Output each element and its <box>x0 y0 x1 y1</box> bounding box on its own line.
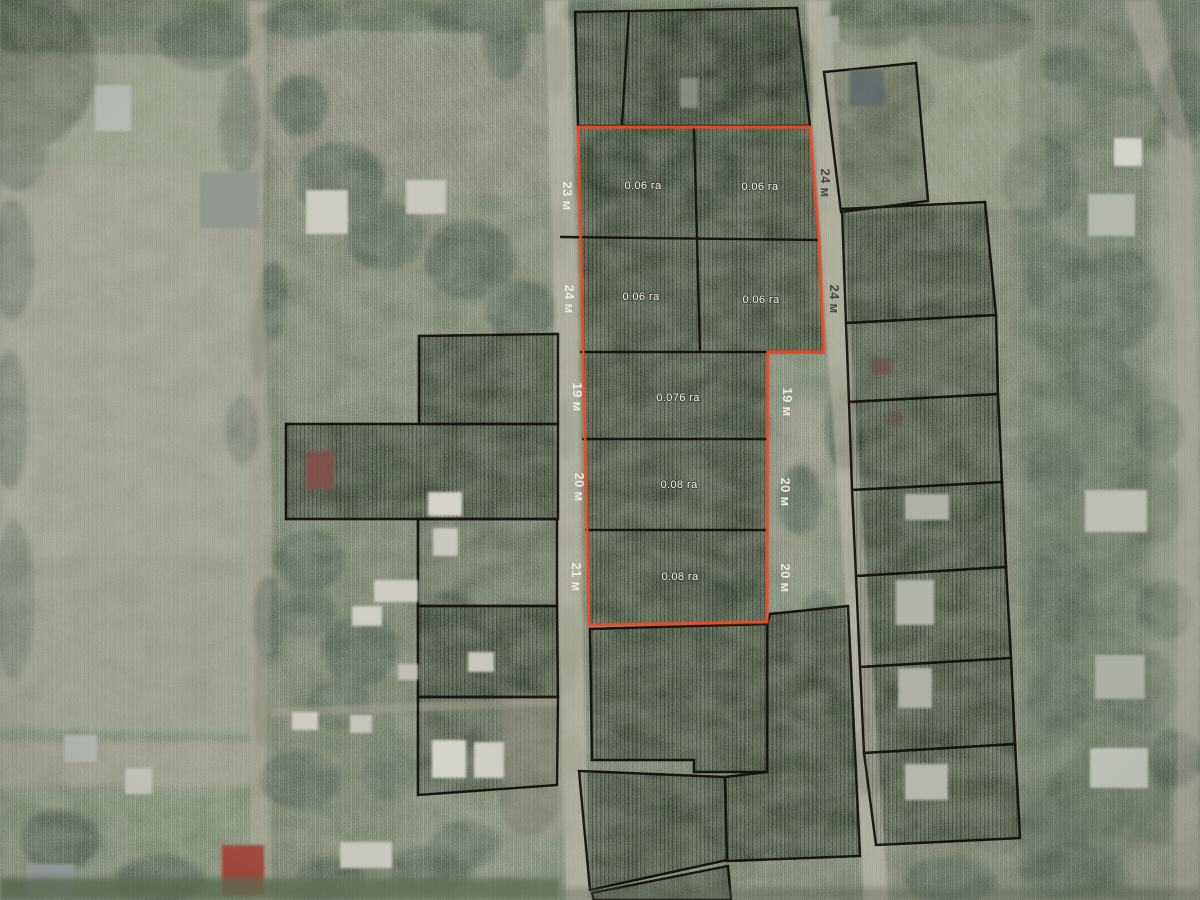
svg-text:24 м: 24 м <box>827 285 842 314</box>
svg-text:24 м: 24 м <box>818 169 833 198</box>
